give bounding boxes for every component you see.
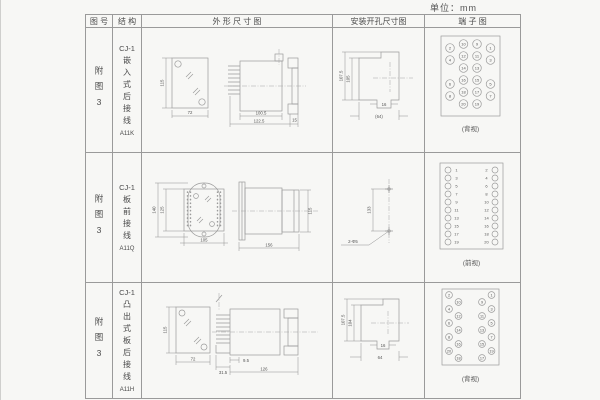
row1-structure: CJ-1 嵌入式后接线 A11K <box>113 28 142 153</box>
dim-label-width: 105 <box>200 238 208 243</box>
pin-number: 6 <box>449 81 452 86</box>
screw-hole-icon <box>194 194 199 199</box>
row2-terminal-cell: 1 3 5 7 9 11 13 15 17 19 2 4 6 8 10 12 1 <box>425 153 520 283</box>
header-outline: 外 形 尺 寸 图 <box>142 15 333 28</box>
pin-number: 16 <box>456 342 460 346</box>
row2-outline-cell: 140 125 105 156 115 <box>142 153 333 283</box>
structure-type-label: 凸出式板后接线 <box>122 300 133 384</box>
pin-number: 11 <box>480 314 484 318</box>
dim-label-outer-height: 107.5 <box>341 314 346 325</box>
pin-number: 20 <box>461 101 466 106</box>
terminal-pins: 2 4 6 8 10 12 14 16 18 20 9 11 13 15 17 … <box>446 40 495 109</box>
pin-number: 8 <box>448 335 450 339</box>
row2-figure-no: 附图3 <box>86 153 113 283</box>
dim-label-height: 115 <box>160 79 165 86</box>
pin-number: 18 <box>461 89 466 94</box>
row2-outline-drawing: 140 125 105 156 115 <box>142 153 333 283</box>
side-view: 100.5 122.5 15 <box>224 49 306 127</box>
page-edge-line <box>0 0 1 400</box>
view-caption: (背视) <box>462 124 479 133</box>
screw-hole-icon <box>175 61 181 67</box>
row3-structure: CJ-1 凸出式板后接线 A11H <box>113 283 142 398</box>
pin-number: 5 <box>455 183 458 188</box>
dim-label-inner-height: 104 <box>348 319 353 327</box>
row3-terminal-cell: 2 4 6 8 20 10 12 14 16 18 9 11 13 15 17 … <box>425 283 520 398</box>
pin-number: 16 <box>484 223 489 228</box>
pin-number: 16 <box>461 77 466 82</box>
pin-number: 15 <box>475 77 480 82</box>
pin-number: 12 <box>456 314 460 318</box>
structure-code-label: A11K <box>120 131 134 137</box>
pin-number: 14 <box>484 215 489 220</box>
pin-number: 5 <box>490 321 492 325</box>
pin-number: 20 <box>447 349 451 353</box>
dimension-table: 图 号 结 构 外 形 尺 寸 图 安装开孔尺寸图 端 子 图 附图3 CJ-1… <box>85 14 521 399</box>
pin-number: 4 <box>449 57 452 62</box>
pin-number: 5 <box>489 81 492 86</box>
dim-label-pin-offset: 9.5 <box>243 358 250 363</box>
dim-label-depth: 156 <box>265 243 273 248</box>
terminal-pins <box>216 315 230 343</box>
pin-number: 7 <box>489 93 492 98</box>
pin-number: 14 <box>461 65 466 70</box>
pin-number: 7 <box>455 191 458 196</box>
structure-code-label: A11Q <box>120 246 135 252</box>
pin-number: 11 <box>454 207 459 212</box>
pin-number: 13 <box>475 65 480 70</box>
view-caption: (背视) <box>462 374 479 383</box>
dim-label-notch: 16 <box>381 343 386 348</box>
dim-label-width: 72 <box>191 357 196 362</box>
terminal-pins: 1 3 5 7 9 11 13 15 17 19 2 4 6 8 10 12 1 <box>445 167 498 245</box>
dim-label-flange-depth: 15 <box>292 118 297 123</box>
pin-number: 4 <box>448 307 450 311</box>
dim-label-body-depth: 100.5 <box>256 111 267 116</box>
screw-hole-icon <box>202 232 206 236</box>
unit-label: 单位：mm <box>430 1 477 14</box>
pin-number: 15 <box>454 223 459 228</box>
structure-type-label: 板前接线 <box>122 195 133 243</box>
front-view: 115 72 <box>160 58 209 118</box>
screw-hole-icon <box>202 184 206 188</box>
terminal-pins <box>228 66 240 94</box>
model-label: CJ-1 <box>119 183 135 192</box>
pin-number: 12 <box>484 207 489 212</box>
dim-label-width: 72 <box>188 110 193 115</box>
row1-figure-no: 附图3 <box>86 28 113 153</box>
pin-number: 9 <box>455 199 458 204</box>
screw-hole-icon <box>179 310 185 316</box>
pin-number: 7 <box>490 335 492 339</box>
dim-label-overall-width: (64) <box>375 114 383 119</box>
row2-structure: CJ-1 板前接线 A11Q <box>113 153 142 283</box>
row1-outline-drawing: 115 72 100.5 122.5 <box>142 28 333 153</box>
figure-no-text: 附图3 <box>93 194 105 242</box>
pin-number: 12 <box>461 53 466 58</box>
row2-install-cell: 133 2-Φ5 <box>333 153 425 283</box>
row1-terminal-cell: 2 4 6 8 10 12 14 16 18 20 9 11 13 15 17 … <box>425 28 520 153</box>
hole-spec-label: 2-Φ5 <box>348 239 358 244</box>
pin-number: 3 <box>489 57 492 62</box>
cutout-outline <box>359 52 399 108</box>
hatch-mark <box>184 319 201 344</box>
front-view: 115 72 <box>163 307 211 365</box>
row3-outline-cell: 115 72 9.5 31.5 <box>142 283 333 398</box>
pin-number: 13 <box>480 328 484 332</box>
header-structure: 结 构 <box>113 15 142 28</box>
dim-label-outer-height: 107.5 <box>339 70 344 81</box>
pin-number: 17 <box>454 231 459 236</box>
pin-number: 15 <box>480 342 484 346</box>
pin-number: 17 <box>480 356 484 360</box>
side-view: 9.5 31.5 126 <box>212 293 318 375</box>
pin-number: 2 <box>449 45 452 50</box>
row2-install-drawing: 133 2-Φ5 <box>333 153 425 283</box>
pin-number: 2 <box>448 293 450 297</box>
screw-hole-icon <box>199 99 205 105</box>
dim-label-overall-width: 64 <box>378 355 383 360</box>
hatch-mark <box>186 72 200 95</box>
pin-number: 1 <box>455 167 458 172</box>
pin-number: 4 <box>485 175 488 180</box>
pin-number: 18 <box>484 231 489 236</box>
header-install: 安装开孔尺寸图 <box>333 15 425 28</box>
row3-install-cell: 107.5 104 16 64 <box>333 283 425 398</box>
row3-install-drawing: 107.5 104 16 64 <box>333 283 425 398</box>
row1-install-cell: 107.5 105 16 (64) <box>333 28 425 153</box>
dim-label-inner-height: 125 <box>160 206 165 214</box>
dim-label-inner-height: 105 <box>346 75 351 83</box>
pin-number: 3 <box>490 307 492 311</box>
pin-number: 18 <box>456 356 460 360</box>
structure-type-label: 嵌入式后接线 <box>122 56 133 128</box>
model-label: CJ-1 <box>119 44 135 53</box>
pin-number: 1 <box>490 293 492 297</box>
dim-label-side-height: 115 <box>308 207 313 214</box>
view-caption: (前视) <box>463 258 480 267</box>
front-view: 140 125 105 <box>152 183 229 246</box>
pin-number: 11 <box>475 53 480 58</box>
side-view: 156 115 <box>232 182 318 251</box>
pin-number: 10 <box>461 41 466 46</box>
pin-number: 13 <box>454 215 459 220</box>
pin-number: 19 <box>475 101 480 106</box>
dim-label-height: 115 <box>163 326 168 333</box>
dim-label-base-depth: 31.5 <box>219 370 228 375</box>
dim-label-total-depth: 126 <box>260 367 268 372</box>
header-figure-no: 图 号 <box>86 15 113 28</box>
pin-number: 6 <box>485 183 488 188</box>
pin-number: 8 <box>485 191 488 196</box>
row1-outline-cell: 115 72 100.5 122.5 <box>142 28 333 153</box>
screw-hole-icon <box>210 222 215 227</box>
figure-no-text: 附图3 <box>93 66 105 114</box>
row2-terminal-drawing: 1 3 5 7 9 11 13 15 17 19 2 4 6 8 10 12 1 <box>425 153 520 283</box>
pin-number: 10 <box>456 300 460 304</box>
pin-number: 8 <box>449 93 452 98</box>
row3-terminal-drawing: 2 4 6 8 20 10 12 14 16 18 9 11 13 15 17 … <box>425 283 520 398</box>
figure-no-text: 附图3 <box>93 317 105 365</box>
pin-number: 9 <box>476 41 479 46</box>
pin-number: 3 <box>455 175 458 180</box>
cutout-outline <box>361 299 399 349</box>
document-page: 单位：mm 图 号 结 构 外 形 尺 寸 图 安装开孔尺寸图 端 子 图 附图… <box>0 0 600 400</box>
dim-label-hole-spacing: 133 <box>367 206 372 214</box>
hatch-mark <box>197 196 211 223</box>
header-terminal: 端 子 图 <box>425 15 520 28</box>
pin-number: 1 <box>489 45 492 50</box>
dim-label-notch: 16 <box>382 102 387 107</box>
model-label: CJ-1 <box>119 288 135 297</box>
pin-number: 6 <box>448 321 450 325</box>
pin-number: 20 <box>484 239 489 244</box>
row1-install-drawing: 107.5 105 16 (64) <box>333 28 425 153</box>
pin-number: 10 <box>484 199 489 204</box>
dim-label-total-depth: 122.5 <box>254 119 265 124</box>
structure-code-label: A11H <box>120 387 135 393</box>
row3-outline-drawing: 115 72 9.5 31.5 <box>142 283 333 398</box>
terminal-pins: 2 4 6 8 20 10 12 14 16 18 9 11 13 15 17 … <box>446 292 495 362</box>
pin-number: 19 <box>489 349 493 353</box>
pin-number: 14 <box>456 328 460 332</box>
pin-number: 2 <box>485 167 488 172</box>
pin-number: 17 <box>475 89 480 94</box>
screw-hole-icon <box>201 344 207 350</box>
row1-terminal-drawing: 2 4 6 8 10 12 14 16 18 20 9 11 13 15 17 … <box>425 28 520 153</box>
dim-label-outer-height: 140 <box>152 206 157 214</box>
row3-figure-no: 附图3 <box>86 283 113 398</box>
pin-number: 9 <box>481 300 483 304</box>
pin-number: 19 <box>454 239 459 244</box>
